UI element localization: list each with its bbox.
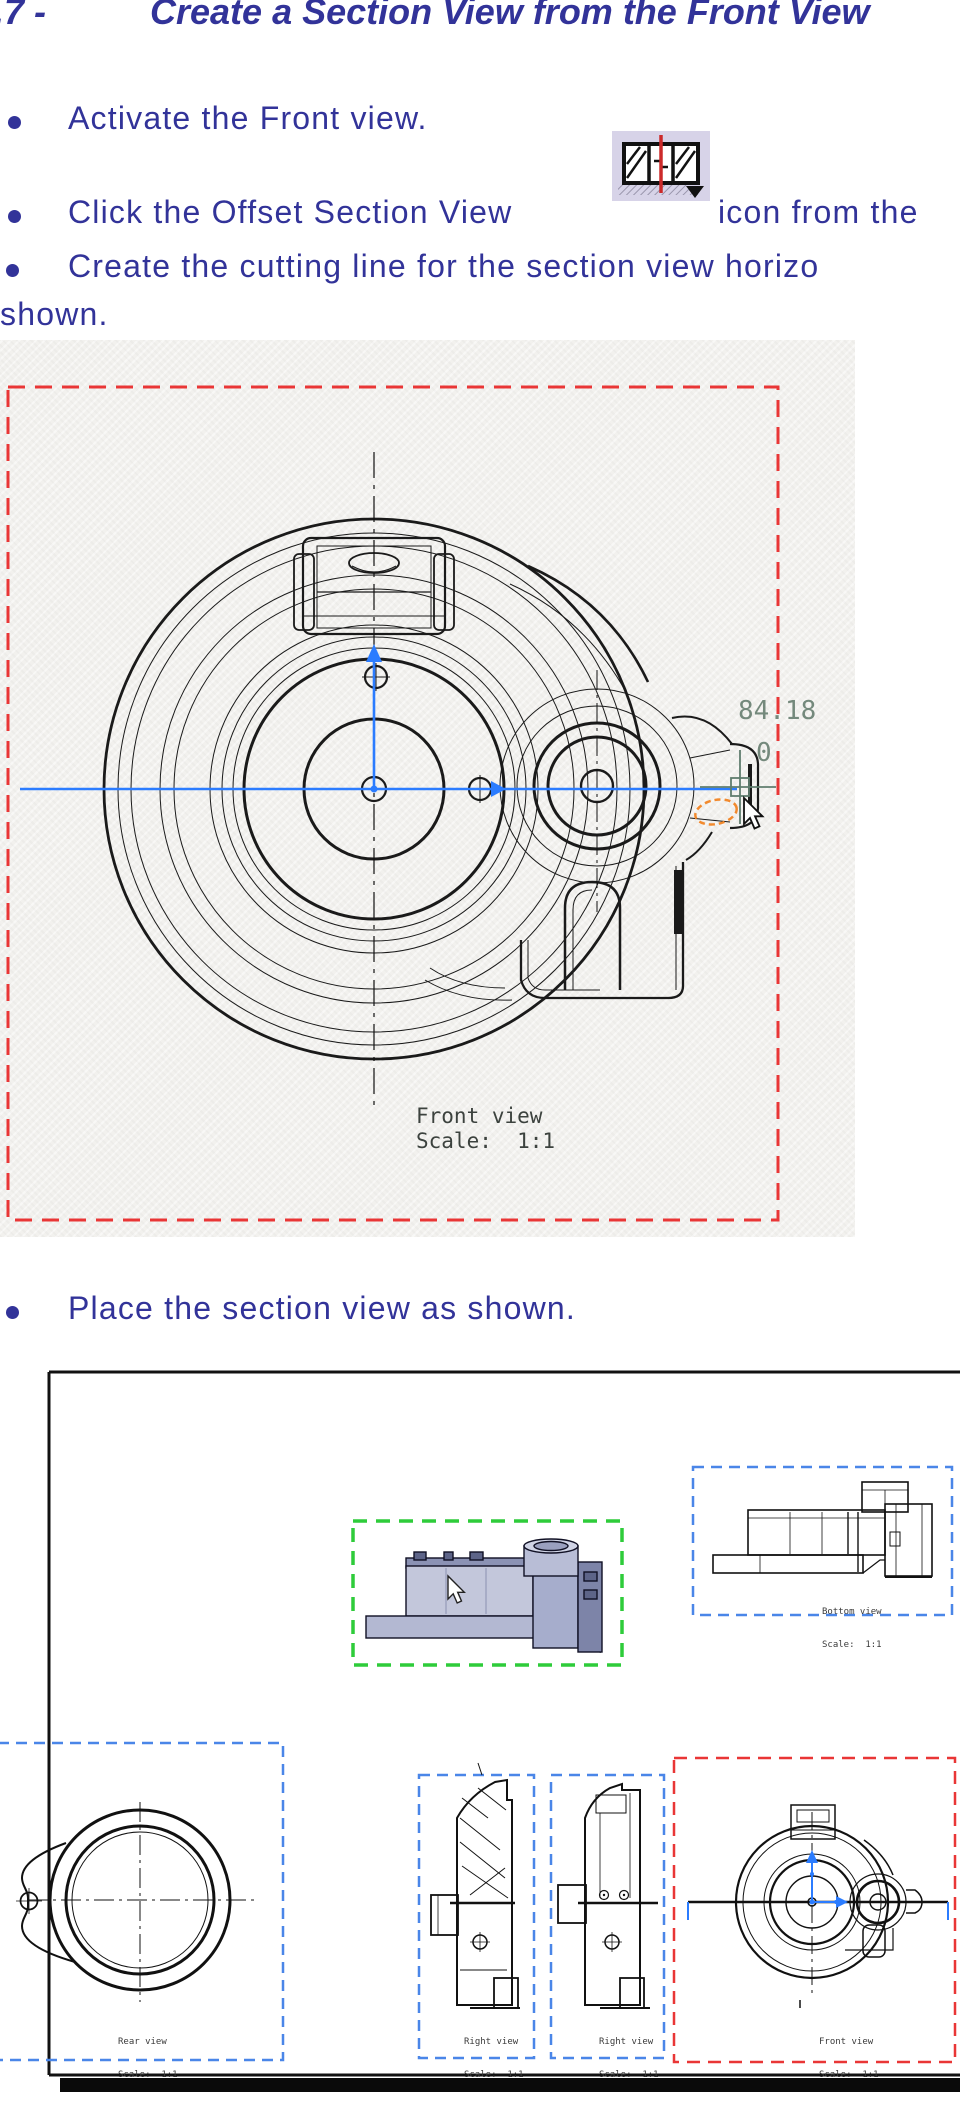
offset-section-view-icon [612,131,710,201]
right-view-2-name: Right view [599,2037,659,2048]
front-view-small-drawing [688,1805,948,2008]
shaded-part-preview [366,1539,602,1652]
front-view-placed [674,1758,955,2062]
bottom-view-label: Bottom view Scale: 1:1 [822,1585,882,1673]
sheet-border [49,1372,960,2092]
front-view-label: Front view [416,1104,542,1129]
rear-view [0,1743,283,2060]
right-view-1 [419,1763,534,2058]
bottom-view-scale: Scale: 1:1 [822,1640,882,1651]
rear-view-label: Rear view Scale: 1:1 [118,2015,178,2103]
offset-section-view-icon-art [612,131,710,201]
right-view-2-scale: Scale: 1:1 [599,2070,659,2081]
right-view-1-drawing [431,1763,520,2008]
page-title-text: Create a Section View from the Front Vie… [150,0,870,33]
front-view-placed-scale: Scale: 1:1 [819,2070,879,2081]
front-view-frame [674,1758,955,2062]
centerlines-group [374,452,597,1110]
dimension-zero-value: 0 [756,738,772,768]
bottom-view-drawing [713,1482,932,1577]
sheet-drawing [0,1350,960,2100]
right-view-2-label: Right view Scale: 1:1 [599,2015,659,2103]
bullet-dot [6,264,19,277]
tutorial-page: .7 - Create a Section View from the Fron… [0,0,960,2127]
active-view-frame [8,387,778,1220]
right-view-1-name: Right view [464,2037,524,2048]
bullet-click-offset-section-pre: Click the Offset Section View [68,194,512,231]
bullet-dot [6,1306,19,1319]
arrow-up-icon [806,1850,818,1863]
front-view-placed-name: Front view [819,2037,879,2048]
figure-front-view-cutting-line: 84.18 0 Front view Scale: 1:1 [0,340,855,1237]
rear-view-drawing [16,1802,258,2002]
bullet-dot [8,116,21,129]
right-view-2-drawing [558,1784,658,2008]
bullet-click-offset-section-post: icon from the [718,194,919,231]
rear-view-scale: Scale: 1:1 [118,2070,178,2081]
bullet-create-cutting-line: Create the cutting line for the section … [68,248,819,285]
figure-sheet-placement: Bottom view Scale: 1:1 Rear view Scale: … [0,1350,960,2100]
page-title-number: .7 - [0,0,46,33]
page-title: .7 - Create a Section View from the Fron… [0,0,960,37]
right-view-1-scale: Scale: 1:1 [464,2070,524,2081]
front-view-scale-label: Scale: 1:1 [416,1129,555,1154]
front-view-placed-label: Front view Scale: 1:1 [819,2015,879,2103]
dimension-offset-value: 84.18 [738,696,816,726]
bottom-view-name: Bottom view [822,1607,882,1618]
front-view-drawing [0,340,855,1237]
arrow-up-icon [366,644,382,662]
right-view-1-label: Right view Scale: 1:1 [464,2015,524,2103]
bullet-place-section-view: Place the section view as shown. [68,1290,576,1327]
section-view-preview [353,1521,622,1665]
bullet-activate-front-view: Activate the Front view. [68,100,428,137]
rear-view-frame [0,1743,283,2060]
snap-highlight-ellipse [693,796,739,828]
rear-view-name: Rear view [118,2037,178,2048]
bullet-dot [8,210,21,223]
bullet-create-cutting-line-cont: shown. [0,296,109,333]
